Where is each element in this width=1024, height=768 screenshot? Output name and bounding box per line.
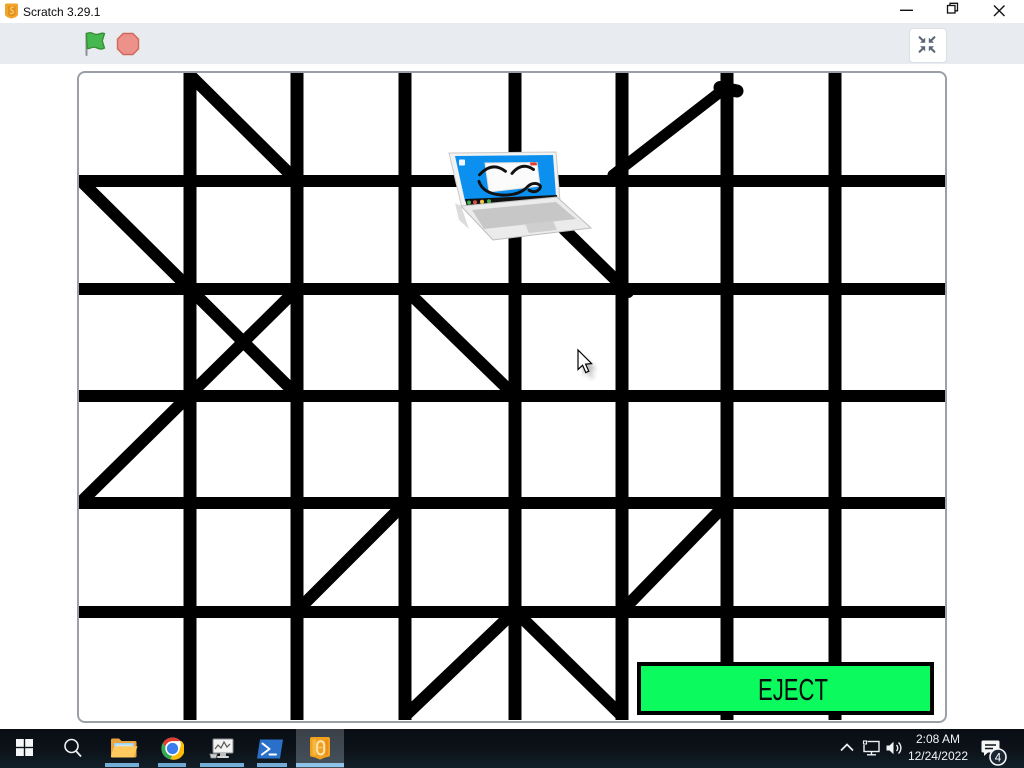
svg-text:4: 4	[995, 753, 1002, 765]
svg-text:EJECT: EJECT	[758, 672, 828, 707]
